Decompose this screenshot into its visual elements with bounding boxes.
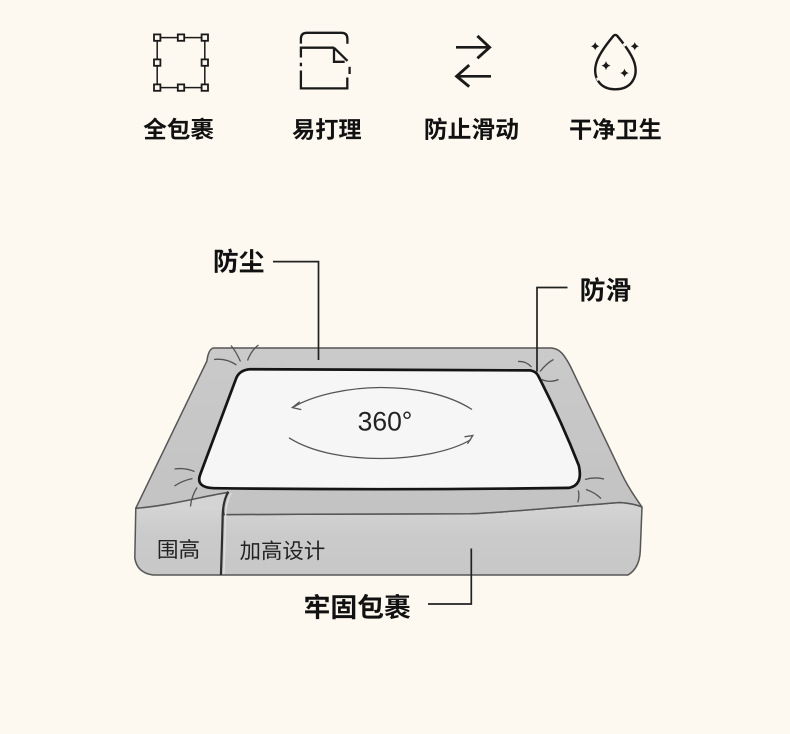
svg-text:360°: 360° [358,406,413,436]
